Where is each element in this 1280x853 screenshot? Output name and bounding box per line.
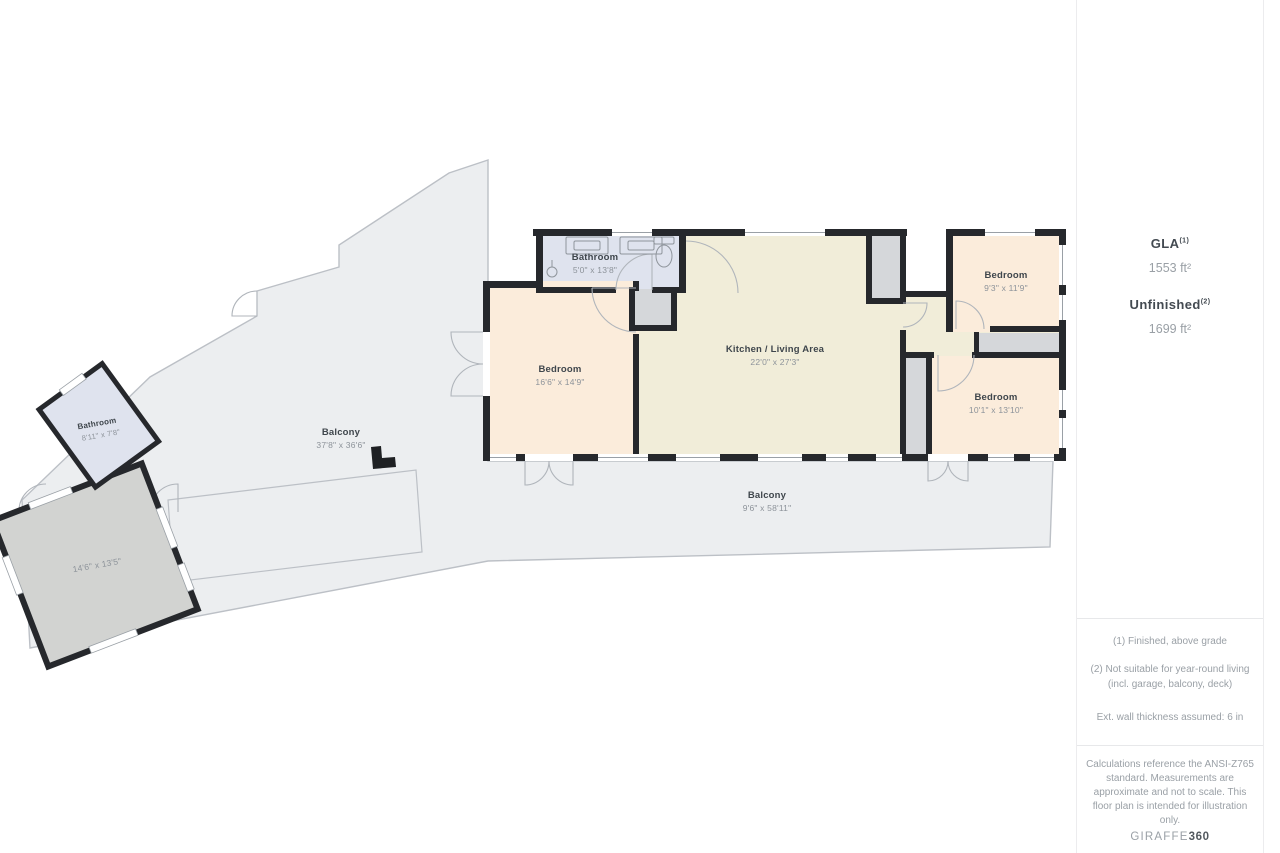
bathroom-main-dims: 5'0" x 13'8" xyxy=(573,265,617,275)
area-metrics: GLA(1) 1553 ft² Unfinished(2) 1699 ft² xyxy=(1077,236,1263,336)
kitchen-living-dims: 22'0" x 27'3" xyxy=(750,357,799,367)
giraffe360-logo: GIRAFFE360 xyxy=(1077,831,1263,843)
floorplan-canvas: 14'6" x 13'5" Bathroom 8'11" x 7'8" xyxy=(0,0,1075,853)
floorplan-page: 14'6" x 13'5" Bathroom 8'11" x 7'8" xyxy=(0,0,1280,853)
balcony-bottom-dims: 9'6" x 58'11" xyxy=(743,503,792,513)
unfinished-metric: Unfinished(2) 1699 ft² xyxy=(1077,297,1263,336)
closet-entry xyxy=(634,289,674,327)
unfinished-footnote-marker: (2) xyxy=(1201,299,1211,306)
balcony-left-dims: 37'8" x 36'6" xyxy=(316,440,365,450)
bedroom-bottom-right-name: Bedroom xyxy=(974,392,1017,403)
bedroom-top-right-name: Bedroom xyxy=(984,270,1027,281)
gla-label: GLA(1) xyxy=(1077,236,1263,251)
bathroom-main-name: Bathroom xyxy=(572,252,618,263)
closet-kitchen xyxy=(872,236,900,302)
bedroom-left-name: Bedroom xyxy=(538,364,581,375)
gla-value: 1553 ft² xyxy=(1077,261,1263,275)
footnote-2: (2) Not suitable for year-round living (… xyxy=(1080,663,1260,692)
footnote-1: (1) Finished, above grade xyxy=(1080,635,1260,650)
unfinished-value: 1699 ft² xyxy=(1077,322,1263,336)
balcony-left-name: Balcony xyxy=(322,427,361,438)
unfinished-label: Unfinished(2) xyxy=(1077,297,1263,312)
sidebar-divider-top xyxy=(1077,618,1263,619)
sidebar-divider-bottom xyxy=(1077,745,1263,746)
bedroom-bottom-right-dims: 10'1" x 13'10" xyxy=(969,405,1023,415)
gla-footnote-marker: (1) xyxy=(1179,238,1189,245)
disclaimer-text: Calculations reference the ANSI-Z765 sta… xyxy=(1085,758,1255,828)
bedroom-left-dims: 16'6" x 14'9" xyxy=(535,377,584,387)
footnote-3: Ext. wall thickness assumed: 6 in xyxy=(1080,711,1260,726)
closet-corridor xyxy=(978,333,1062,355)
kitchen-living-name: Kitchen / Living Area xyxy=(726,344,825,355)
gla-metric: GLA(1) 1553 ft² xyxy=(1077,236,1263,275)
summary-sidebar: GLA(1) 1553 ft² Unfinished(2) 1699 ft² (… xyxy=(1076,0,1264,853)
closet-bottom-right xyxy=(905,358,927,454)
bedroom-top-right-dims: 9'3" x 11'9" xyxy=(984,283,1028,293)
balcony-bottom-name: Balcony xyxy=(748,490,787,501)
